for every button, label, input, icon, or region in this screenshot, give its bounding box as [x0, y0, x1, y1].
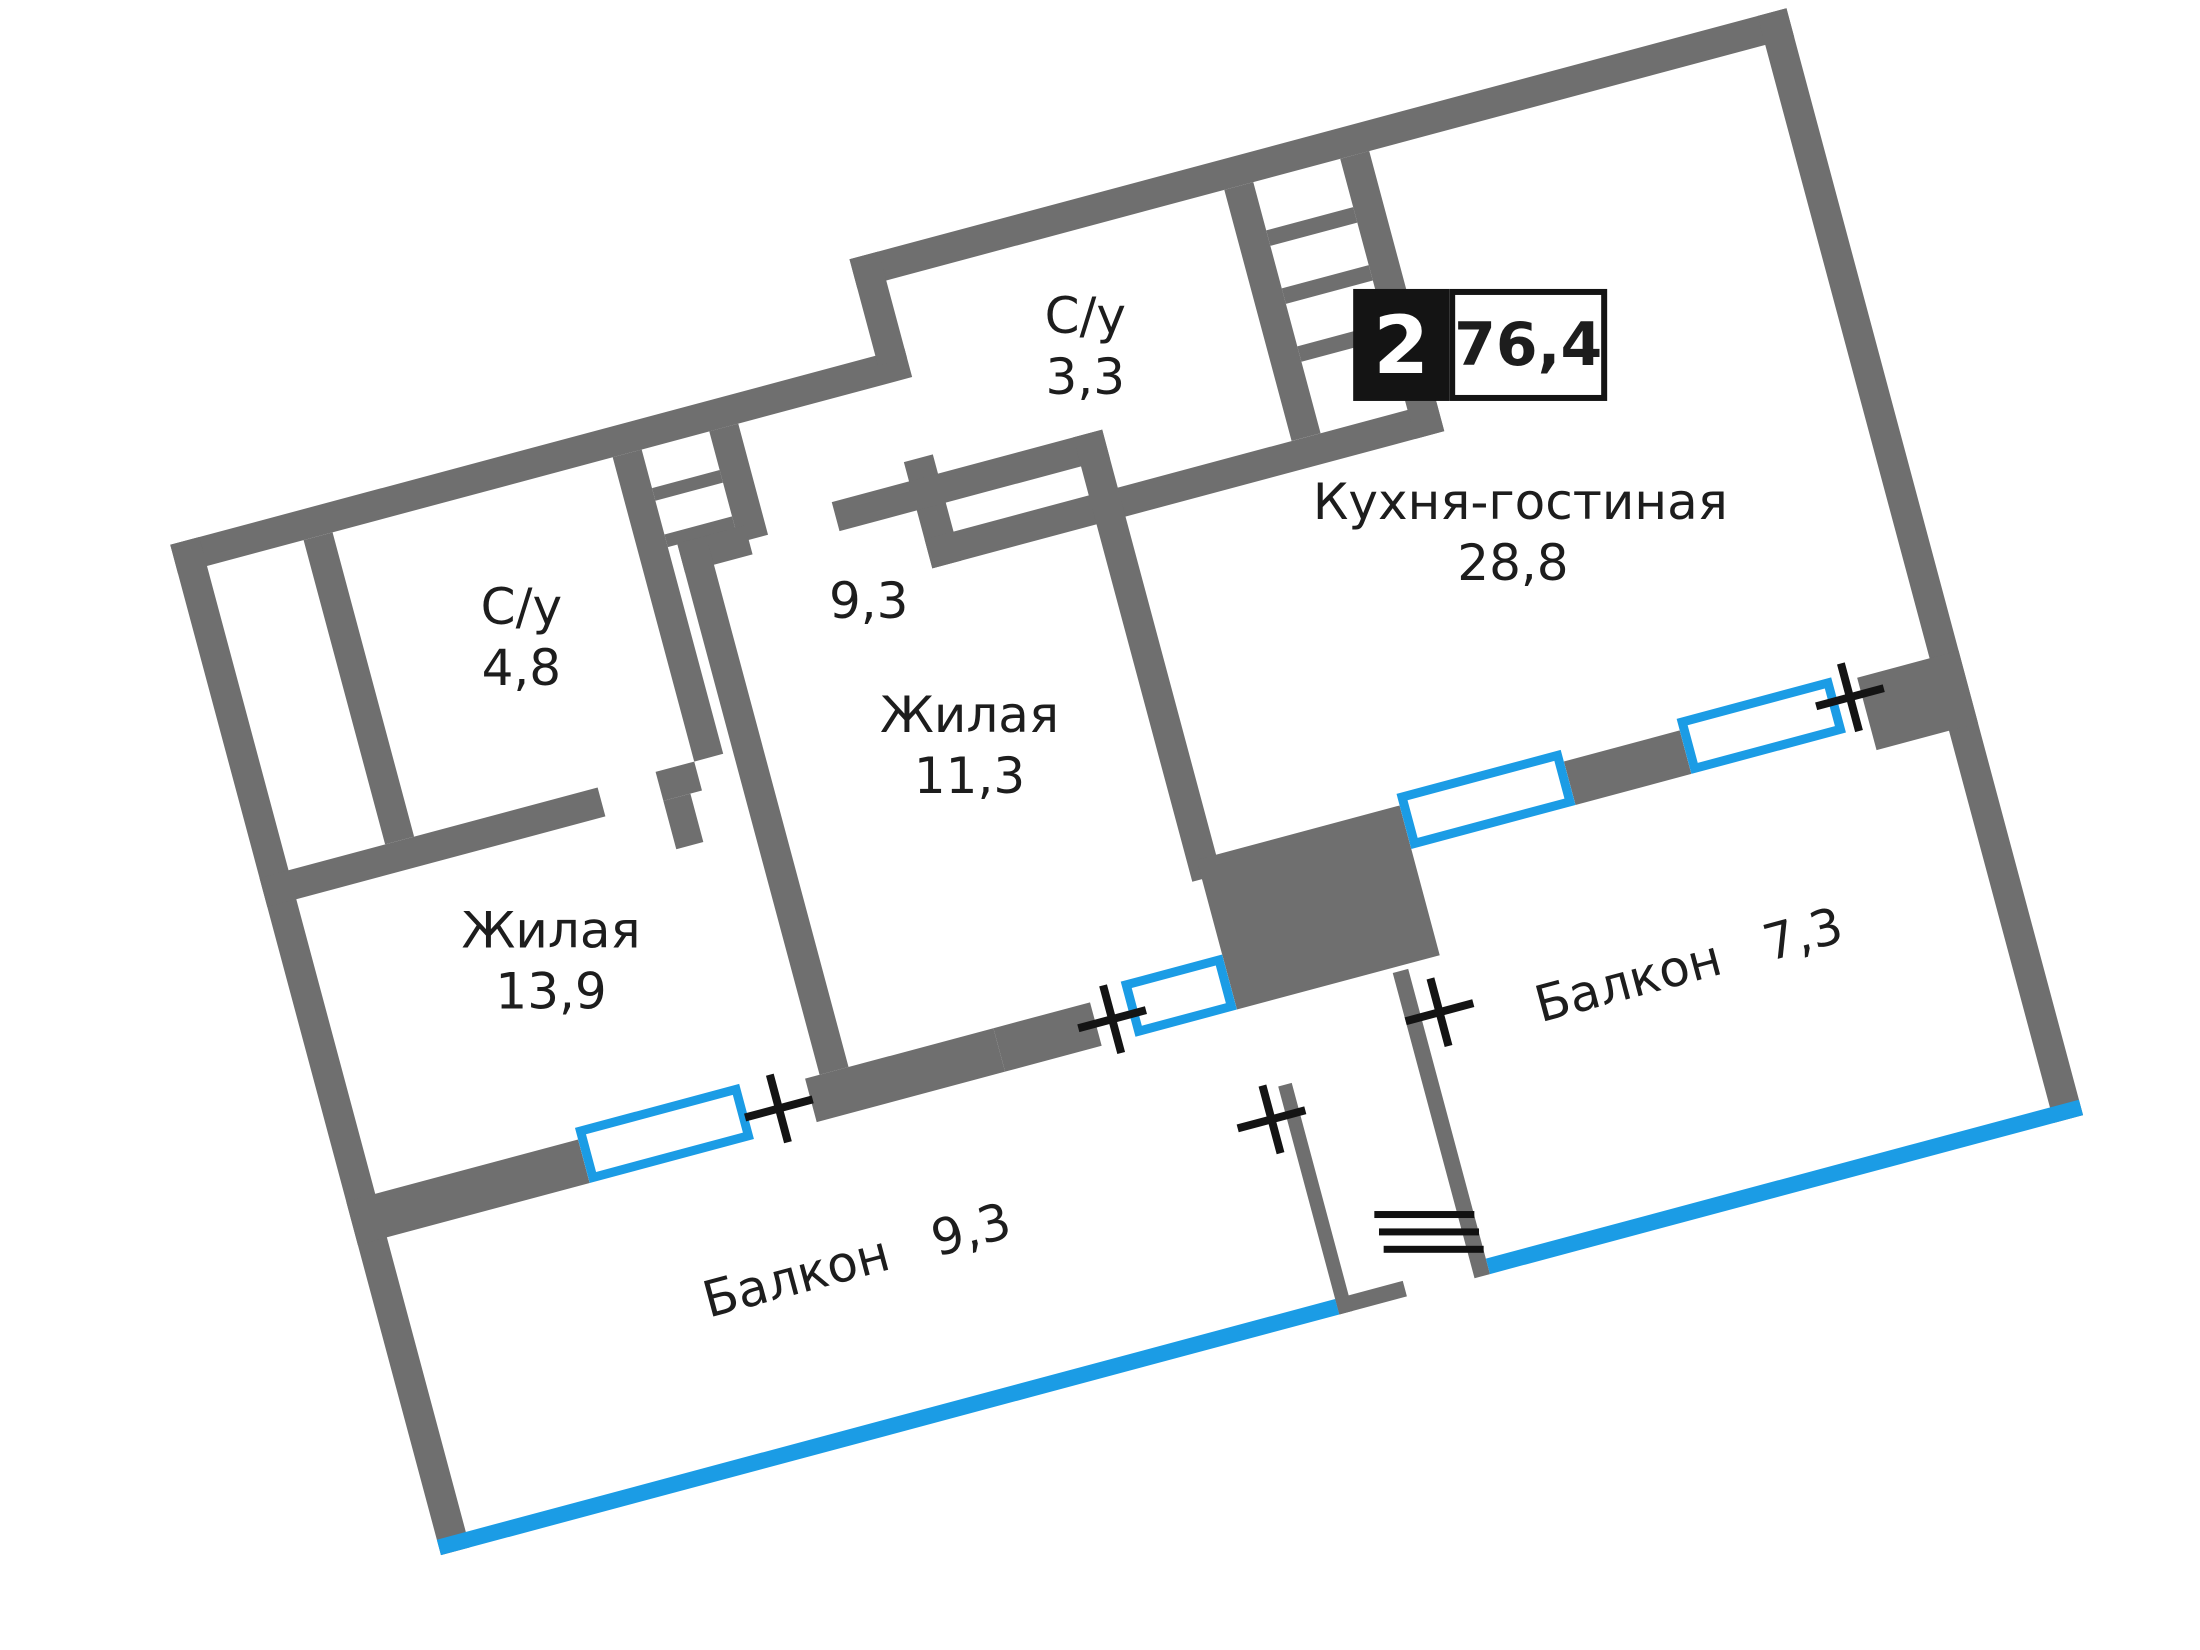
room-name: Балкон [697, 1224, 896, 1329]
room-area: 11,3 [820, 746, 1120, 807]
floor-plan-canvas: С/у 4,8 9,3 С/у 3,3 Кухня-гостиная 28,8 … [0, 0, 2200, 1650]
hallway-area-label: 9,3 [799, 571, 939, 632]
badge-total-area: 76,4 [1449, 289, 1607, 401]
ladder-hatch [1384, 1246, 1484, 1253]
room-name: Жилая [401, 900, 701, 961]
room-label-balcony2: Балкон7,3 [1529, 896, 1849, 1034]
balcony-railing [437, 1299, 1339, 1555]
ladder-hatch [1374, 1211, 1474, 1218]
room-label-kitchen: Кухня-гостиная 28,8 [1313, 472, 1713, 594]
room-area: 9,3 [925, 1192, 1017, 1269]
room-area: 7,3 [1757, 896, 1849, 973]
room-area: 4,8 [371, 638, 671, 699]
badge-rooms-count: 2 [1353, 289, 1449, 401]
room-label-bathroom2: С/у 3,3 [935, 286, 1235, 408]
room-name: С/у [935, 286, 1235, 347]
room-label-living1: Жилая 13,9 [401, 900, 701, 1022]
room-name: Кухня-гостиная [1313, 472, 1713, 533]
room-area: 13,9 [401, 961, 701, 1022]
wall [260, 787, 606, 907]
vent-shaft-rung [652, 470, 723, 501]
room-label-balcony1: Балкон9,3 [697, 1192, 1017, 1330]
window [1397, 750, 1576, 849]
wall [663, 794, 703, 850]
window [575, 1084, 754, 1183]
vent-shaft-rung [1266, 207, 1357, 246]
room-name: Жилая [820, 685, 1120, 746]
wall [656, 762, 702, 801]
wall [850, 8, 1795, 288]
room-name: С/у [371, 577, 671, 638]
wall [170, 348, 912, 574]
room-area: 3,3 [935, 347, 1235, 408]
room-area: 28,8 [1313, 533, 1713, 594]
ladder-hatch [1379, 1228, 1479, 1235]
wall [346, 1139, 589, 1245]
balcony-railing [1486, 1100, 2083, 1274]
room-name: Балкон [1529, 929, 1728, 1034]
room-area: 9,3 [799, 571, 939, 632]
wall [1564, 730, 1692, 805]
room-label-bathroom1: С/у 4,8 [371, 577, 671, 699]
apartment-badge: 2 76,4 [1353, 289, 1607, 401]
room-label-living2: Жилая 11,3 [820, 685, 1120, 807]
